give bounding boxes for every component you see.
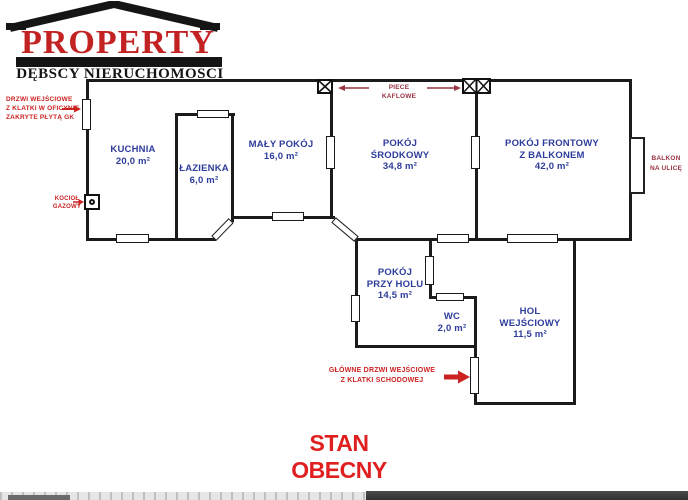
boiler-arrow-icon <box>73 198 84 206</box>
room-label-middle-room: POKÓJŚRODKOWY34,8 m² <box>358 138 442 173</box>
tile-stoves-left-arrow-icon <box>338 84 369 92</box>
wc-door <box>436 293 464 301</box>
small-room-corner-door <box>331 217 358 242</box>
wall-entry-hall-right <box>573 238 576 405</box>
tile-stoves-right-arrow-icon <box>427 84 461 92</box>
room-label-kitchen: KUCHNIA20,0 m² <box>92 144 174 167</box>
tile-stove-icon <box>317 79 333 94</box>
gas-boiler-icon <box>84 194 100 210</box>
wall-kitchen-bottom <box>86 238 216 241</box>
bathroom-door <box>211 218 233 241</box>
wall-lower-band-top <box>355 238 632 241</box>
bathroom-window <box>197 110 229 118</box>
scan-edge-dark <box>366 491 688 500</box>
tile-stove-double-icon <box>462 78 491 94</box>
hall-to-middle-door <box>437 234 469 243</box>
main-entrance-door <box>470 357 479 394</box>
main-entrance-arrow-icon <box>444 370 470 384</box>
hall-to-front-door <box>507 234 558 243</box>
wall-hall-room-bottom <box>355 345 477 348</box>
room-label-wc: WC2,0 m² <box>431 311 473 334</box>
wall-top <box>86 79 632 82</box>
small-room-window <box>272 212 304 221</box>
side-entrance-arrow-icon <box>62 104 82 114</box>
note-balcony: BALKON NA ULICĘ <box>644 154 688 174</box>
scan-edge-dark-left <box>8 495 70 500</box>
room-label-bathroom: ŁAZIENKA6,0 m² <box>164 163 244 186</box>
kitchen-window <box>116 234 149 243</box>
hall-room-window <box>351 295 360 322</box>
note-side-entrance: DRZWI WEJŚCIOWE Z KLATKI W OFICYNIE ZAKR… <box>6 95 98 122</box>
note-tile-stoves: PIECE KAFLOWE <box>371 83 427 101</box>
floor-plan-page: PROPERTY DĘBSCY NIERUCHOMOŚCI <box>0 0 688 500</box>
middle-to-front-door <box>471 136 480 169</box>
room-label-front-room: POKÓJ FRONTOWYZ BALKONEM42,0 m² <box>497 138 607 173</box>
wall-entry-hall-bottom <box>474 402 576 405</box>
balcony-outline <box>629 137 645 194</box>
wall-hall-room-left <box>355 238 358 348</box>
room-label-hall-room: POKÓJPRZY HOLU14,5 m² <box>364 267 426 302</box>
room-label-small-room: MAŁY POKÓJ16,0 m² <box>226 139 336 162</box>
hall-room-door <box>425 256 434 285</box>
note-main-entrance: GŁÓWNE DRZWI WEJŚCIOWE Z KLATKI SCHODOWE… <box>316 366 448 385</box>
page-title: STAN OBECNY <box>264 430 414 484</box>
room-label-entry-hall: HOLWEJŚCIOWY11,5 m² <box>487 306 573 341</box>
